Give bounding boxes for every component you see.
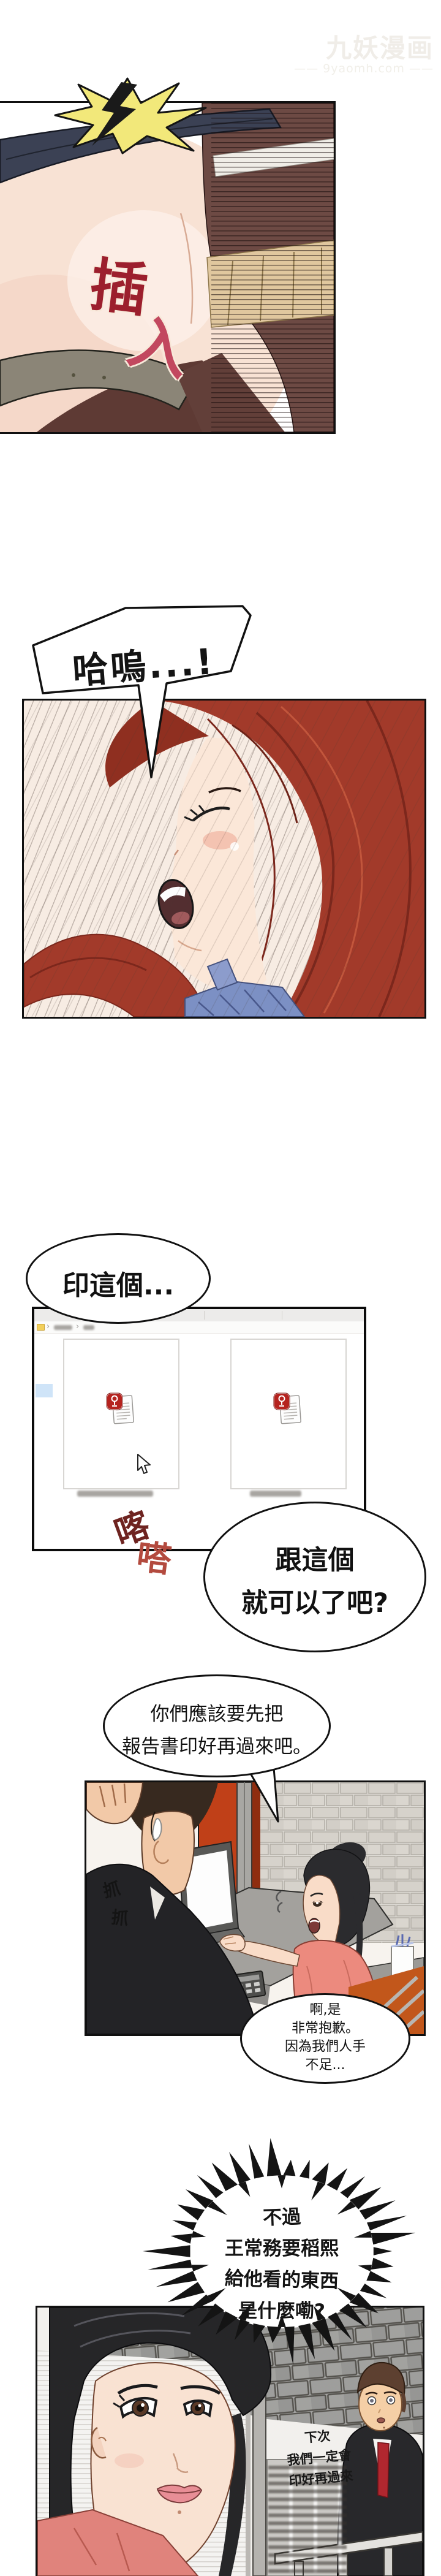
- red-tie: [378, 2442, 389, 2498]
- document-card: [230, 1339, 347, 1489]
- apology-line1: 啊,是: [242, 1995, 409, 2019]
- moan-text: 哈嗚...!: [70, 633, 216, 694]
- apology-line4: 不足...: [242, 2056, 409, 2075]
- document-filename: [77, 1491, 153, 1497]
- apology-line3: 因為我們人手: [242, 2038, 409, 2056]
- breadcrumb-chevron: ›: [76, 1322, 79, 1331]
- with-this-line2: 就可以了吧?: [205, 1582, 424, 1620]
- thought-text: 不過 王常務要稻熙 給他看的東西 是什麼嘞?: [175, 2202, 389, 2323]
- breadcrumb-crumb: [54, 1325, 72, 1330]
- speedlines-right: [211, 103, 334, 432]
- promise-text: 下次 我們一定會 印好再過來: [278, 2424, 360, 2491]
- moan-bubble: [24, 604, 257, 788]
- sfx-scratch-bottom: 抓: [110, 1904, 130, 1931]
- explorer-address-bar: › ›: [34, 1321, 364, 1334]
- breadcrumb-chevron: ›: [47, 1322, 50, 1331]
- impact-starburst: [49, 77, 213, 156]
- should-print-line1: 你們應該要先把: [105, 1676, 329, 1726]
- document-card: [63, 1339, 179, 1489]
- hwp-document-icon: [106, 1392, 138, 1430]
- apology-line2: 非常抱歉。: [242, 2019, 409, 2038]
- breadcrumb-crumb: [83, 1325, 94, 1330]
- thought-line1: 不過: [174, 2198, 389, 2233]
- print-this-text: 印這個...: [28, 1235, 209, 1302]
- thought-line3: 給他看的東西: [174, 2261, 389, 2294]
- sidebar-highlight: [36, 1384, 53, 1397]
- with-this-line1: 跟這個: [205, 1503, 424, 1577]
- document-filename: [250, 1491, 301, 1497]
- sfx-click-bottom: 嗒: [134, 1529, 174, 1582]
- cursor-icon: [135, 1454, 153, 1476]
- hwp-document-icon: [273, 1392, 305, 1430]
- watermark-brand: 九妖漫画: [294, 34, 434, 63]
- watermark: 九妖漫画 —— 9yaomh.com ——: [294, 34, 434, 75]
- should-print-bubble: 你們應該要先把 報告書印好再過來吧。: [103, 1674, 331, 1777]
- thought-line4: 是什麼嘞?: [175, 2295, 389, 2323]
- folder-icon: [37, 1324, 45, 1331]
- should-print-line2: 報告書印好再過來吧。: [105, 1731, 329, 1758]
- with-this-bubble: 跟這個 就可以了吧?: [203, 1502, 426, 1652]
- webtoon-page: { "page": {"width": 720, "height": 4200,…: [0, 0, 441, 2574]
- print-this-bubble: 印這個...: [26, 1233, 211, 1324]
- apology-bubble: 啊,是 非常抱歉。 因為我們人手 不足...: [240, 1993, 410, 2084]
- watermark-site: —— 9yaomh.com ——: [294, 63, 434, 75]
- thought-line2: 王常務要稻熙: [175, 2233, 389, 2260]
